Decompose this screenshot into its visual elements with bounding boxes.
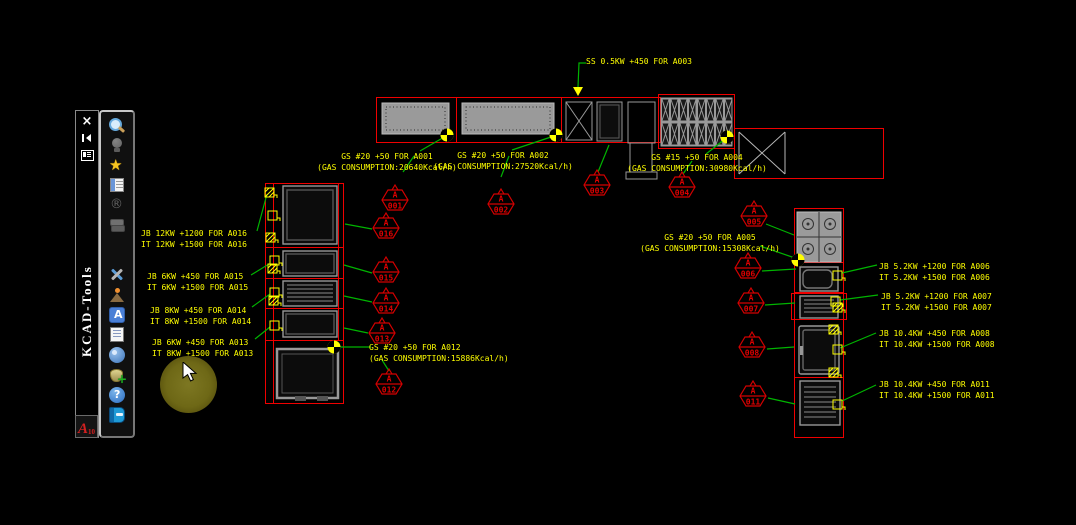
task-list-icon [109, 177, 125, 193]
svg-text:005: 005 [747, 218, 762, 227]
leader-arrowhead [573, 87, 583, 96]
equipment-a001 [382, 103, 449, 134]
kcad-tools-palette: × KCAD-Tools A 10 [75, 110, 135, 438]
idea-bulb-button[interactable] [104, 135, 130, 155]
close-button[interactable]: × [80, 114, 94, 128]
svg-text:007: 007 [744, 305, 759, 314]
task-list-button[interactable] [104, 175, 130, 195]
database-add-icon [109, 367, 125, 383]
report-icon [109, 327, 125, 343]
junction-box-marker [266, 233, 278, 243]
equipment-tag-004: A004 [669, 172, 695, 198]
equipment-tag-015: A015 [373, 257, 399, 283]
connection-point-marker [550, 129, 563, 142]
equipment-tags: A001A002A003A004A005A006A007A008A011A012… [369, 170, 767, 407]
equipment-tag-003: A003 [584, 170, 610, 196]
svg-text:015: 015 [379, 274, 394, 283]
connection-point-marker [792, 254, 805, 267]
annotation-a002: GS #20 +50 FOR A002(GAS CONSUMPTION:2752… [433, 150, 573, 172]
svg-text:A: A [751, 387, 756, 396]
idea-bulb-icon [109, 137, 125, 153]
annotation-a014: JB 8KW +450 FOR A014IT 8KW +1500 FOR A01… [150, 305, 251, 327]
svg-text:014: 014 [379, 305, 394, 314]
annotation-a004: GS #15 +50 FOR A004(GAS CONSUMPTION:3098… [627, 152, 767, 174]
equipment-tag-011: A011 [740, 381, 766, 407]
svg-text:012: 012 [382, 386, 397, 395]
registered-mark-icon [109, 197, 125, 213]
equipment-sink [566, 102, 592, 140]
user-profile-button[interactable] [104, 345, 130, 365]
help-button[interactable] [104, 385, 130, 405]
equipment-a015 [283, 251, 337, 276]
svg-text:A: A [499, 195, 504, 204]
equipment-tag-016: A016 [373, 213, 399, 239]
annotation-a003: SS 0.5KW +450 FOR A003 [586, 56, 692, 67]
equipment-tag-001: A001 [382, 185, 408, 211]
search-button[interactable] [104, 115, 130, 135]
svg-text:A: A [384, 294, 389, 303]
equipment-tag-006: A006 [735, 253, 761, 279]
layer-stack-icon [109, 217, 125, 233]
svg-text:016: 016 [379, 230, 394, 239]
logo-version: 10 [88, 428, 95, 437]
annotation-a012: GS #20 +50 FOR A012(GAS CONSUMPTION:1588… [369, 342, 509, 364]
equipment-tag-005: A005 [741, 201, 767, 227]
favorites-star-button[interactable] [104, 155, 130, 175]
logo-letter: A [78, 422, 88, 437]
svg-text:A: A [393, 191, 398, 200]
equipment-tag-013: A013 [369, 318, 395, 344]
terrain-button[interactable] [104, 285, 130, 305]
connection-point-marker [721, 131, 734, 144]
text-style-button[interactable] [104, 305, 130, 325]
svg-text:A: A [387, 375, 392, 384]
annotation-a005: GS #20 +50 FOR A005(GAS CONSUMPTION:1530… [640, 232, 780, 254]
equipment-a012 [277, 349, 338, 398]
svg-text:001: 001 [388, 202, 403, 211]
user-profile-icon [109, 347, 125, 363]
cad-application-window: A001A002A003A004A005A006A007A008A011A012… [0, 0, 1076, 525]
database-add-button[interactable] [104, 365, 130, 385]
svg-text:003: 003 [590, 187, 605, 196]
menu-button[interactable] [80, 148, 94, 162]
equipment-a016 [283, 186, 337, 244]
text-style-icon [109, 307, 125, 323]
annotation-a016: JB 12KW +1200 FOR A016IT 12KW +1500 FOR … [141, 228, 247, 250]
equipment-tag-012: A012 [376, 369, 402, 395]
tools-icon [109, 267, 125, 283]
equipment-a007 [800, 296, 838, 318]
connection-point-marker [328, 341, 341, 354]
equipment-outlines [266, 95, 884, 438]
leader-lines [251, 63, 878, 404]
svg-text:002: 002 [494, 206, 509, 215]
manual-book-button[interactable] [104, 405, 130, 425]
svg-text:A: A [595, 176, 600, 185]
svg-text:A: A [750, 338, 755, 347]
collapse-icon [82, 134, 92, 142]
annotation-a007: JB 5.2KW +1200 FOR A007IT 5.2KW +1500 FO… [881, 291, 992, 313]
annotation-a013: JB 6KW +450 FOR A013IT 8KW +1500 FOR A01… [152, 337, 253, 359]
equipment-a011 [800, 381, 840, 425]
svg-text:A: A [746, 259, 751, 268]
equipment-tag-014: A014 [373, 288, 399, 314]
equipment-tag-002: A002 [488, 189, 514, 215]
palette-title: KCAD-Tools [79, 162, 95, 437]
svg-text:A: A [384, 219, 389, 228]
svg-text:A: A [384, 263, 389, 272]
equipment-tag-007: A007 [738, 288, 764, 314]
report-button[interactable] [104, 325, 130, 345]
svg-text:A: A [380, 324, 385, 333]
tools-button[interactable] [104, 265, 130, 285]
annotation-a006: JB 5.2KW +1200 FOR A006IT 5.2KW +1500 FO… [879, 261, 990, 283]
autocad-logo: A 10 [75, 415, 98, 438]
equipment-a003 [597, 102, 622, 141]
annotation-a008: JB 10.4KW +450 FOR A008IT 10.4KW +1500 F… [879, 328, 995, 350]
equipment-tag-008: A008 [739, 332, 765, 358]
layer-stack-button[interactable] [104, 215, 130, 235]
equipment-bodies [277, 98, 841, 425]
registered-mark-button[interactable] [104, 195, 130, 215]
equipment-a002 [462, 103, 554, 134]
manual-book-icon [109, 407, 125, 423]
palette-icon-panel [99, 110, 135, 438]
svg-text:006: 006 [741, 270, 756, 279]
terrain-icon [109, 287, 125, 303]
menu-icon [81, 150, 94, 161]
svg-text:A: A [680, 178, 685, 187]
annotation-a015: JB 6KW +450 FOR A015IT 6KW +1500 FOR A01… [147, 271, 248, 293]
svg-text:A: A [749, 294, 754, 303]
cursor-highlight-circle [160, 356, 217, 413]
favorites-star-icon [109, 157, 125, 173]
palette-titlebar: × KCAD-Tools A 10 [75, 110, 99, 438]
search-icon [109, 117, 125, 133]
junction-box-marker [270, 321, 282, 331]
collapse-button[interactable] [80, 131, 94, 145]
help-icon [109, 387, 125, 403]
connection-point-marker [441, 129, 454, 142]
junction-box-marker [265, 188, 277, 198]
svg-text:011: 011 [746, 398, 761, 407]
svg-text:008: 008 [745, 349, 760, 358]
equipment-a013 [283, 311, 337, 337]
mouse-cursor-icon [182, 362, 198, 384]
svg-text:004: 004 [675, 189, 690, 198]
svg-text:A: A [752, 207, 757, 216]
annotation-a011: JB 10.4KW +450 FOR A011IT 10.4KW +1500 F… [879, 379, 995, 401]
